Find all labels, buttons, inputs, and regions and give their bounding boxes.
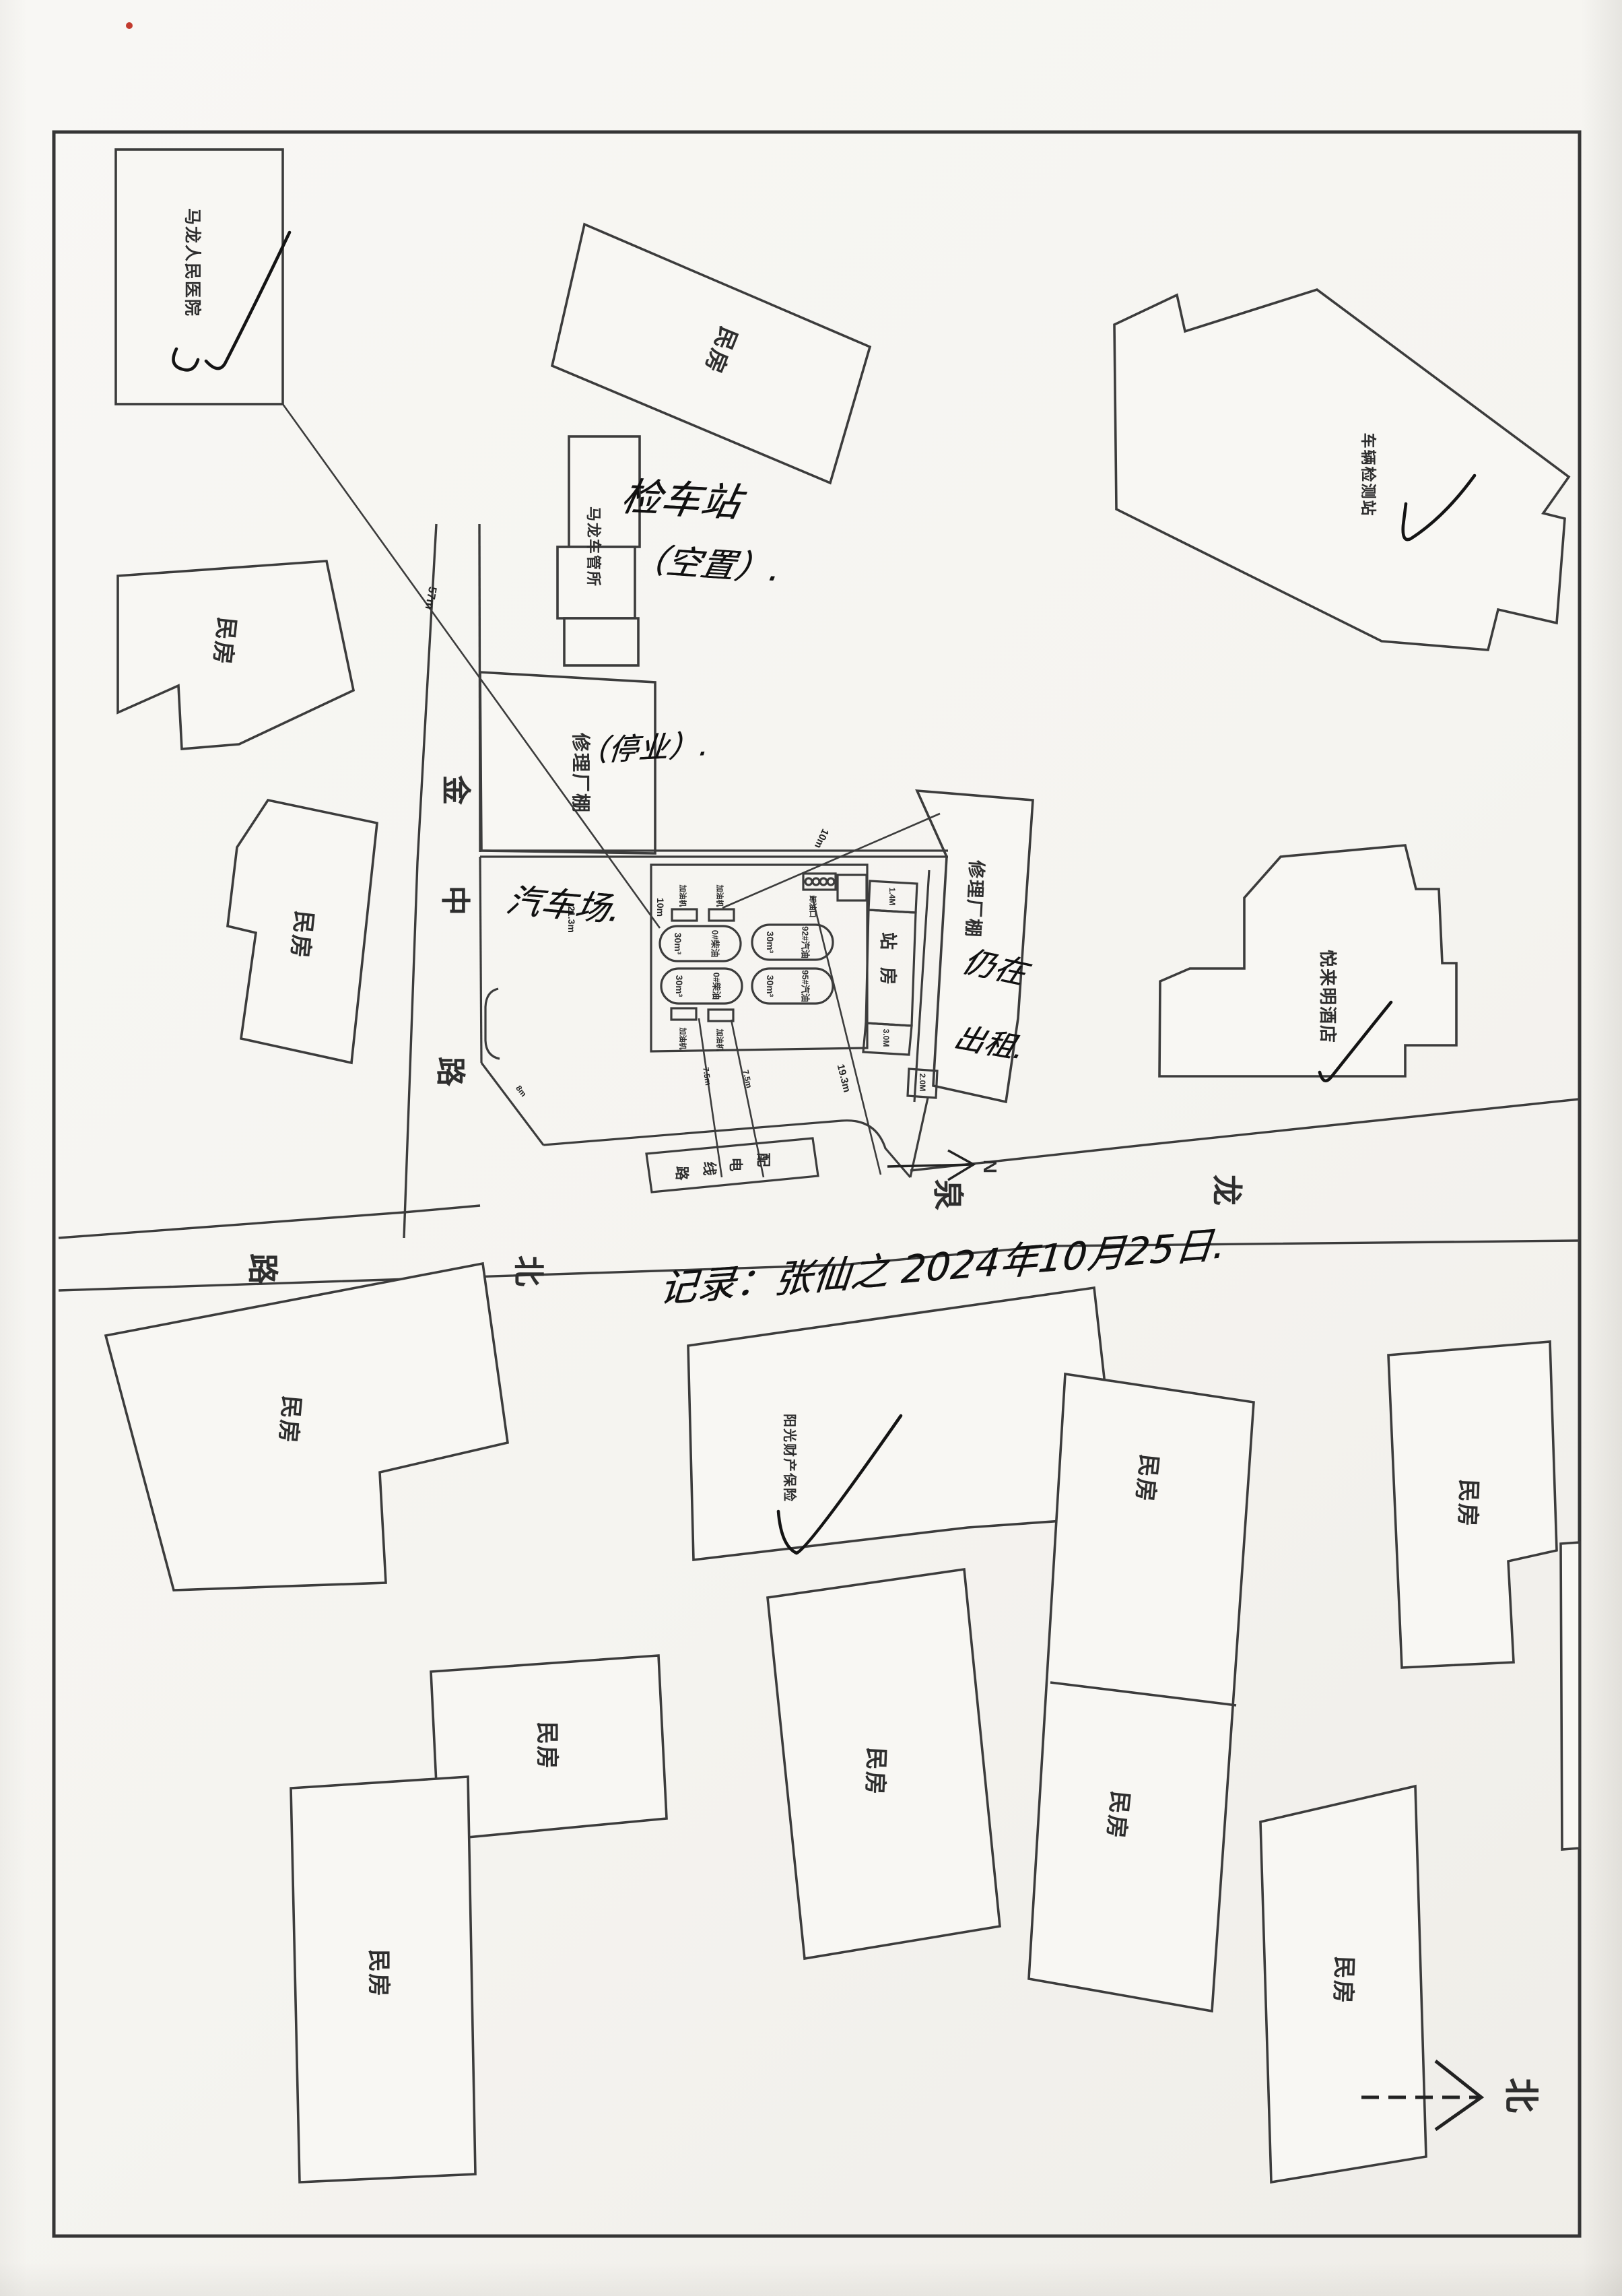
building-outline-hotel bbox=[1159, 845, 1456, 1076]
building-label-hotel: 悦来明酒店 bbox=[1319, 950, 1337, 1044]
building-label-house: 民房 bbox=[1133, 1453, 1160, 1503]
building-outline-vehicle-admin-3 bbox=[564, 618, 638, 665]
powerline-char-pei: 配 bbox=[756, 1153, 770, 1167]
tank-2-product-label: 0#柴油 bbox=[712, 973, 721, 999]
tank-4-outline bbox=[752, 969, 833, 1004]
dim-line-19-3m bbox=[812, 896, 881, 1175]
building-label-house: 民房 bbox=[367, 1949, 390, 1998]
road-main-char-lu: 路 bbox=[247, 1253, 278, 1286]
unloading-port-1 bbox=[805, 878, 812, 885]
powerline-char-dian: 电 bbox=[729, 1158, 743, 1172]
building-outline-strip-east bbox=[1561, 1542, 1580, 1849]
handwriting-canopy-note: 汽车场. bbox=[504, 884, 626, 927]
dim-line-10m bbox=[722, 814, 940, 908]
road-side-left-edge bbox=[404, 524, 436, 1238]
tank-4-volume-label: 30m³ bbox=[766, 975, 775, 997]
tank-2-volume-label: 30m³ bbox=[675, 975, 684, 997]
building-label-repair-shed-right: 修理厂棚 bbox=[963, 859, 985, 938]
plot-bottom-boundary bbox=[543, 1121, 910, 1177]
tank-3-volume-label: 30m³ bbox=[766, 931, 775, 954]
dim-label-10m-edge: 10m bbox=[656, 898, 665, 917]
plot-corner-diagonal bbox=[481, 1063, 543, 1145]
site-plan-drawing bbox=[0, 0, 1622, 2296]
dispenser-a1 bbox=[672, 909, 697, 921]
entrance-curb-arc bbox=[485, 989, 500, 1059]
buildings-linework bbox=[106, 150, 1580, 2182]
tank-1-outline bbox=[660, 926, 741, 961]
building-label-inspection-station: 车辆检测站 bbox=[1361, 433, 1376, 517]
road-main-upper-edge-right bbox=[910, 1099, 1579, 1171]
north-char-bottom-right: 北 bbox=[1503, 2078, 1538, 2114]
tank-2-outline bbox=[661, 969, 742, 1004]
dispenser-a2 bbox=[709, 909, 734, 921]
handwriting-closed-note: （停业）. bbox=[577, 731, 711, 767]
dispenser-b1 bbox=[671, 1008, 696, 1020]
road-main-char-bei: 北 bbox=[513, 1255, 544, 1288]
road-side-char-jin: 金 bbox=[440, 775, 470, 806]
handwriting-inspection-note-line1: 检车站 bbox=[618, 478, 745, 523]
corner-box-label: 2.0M bbox=[918, 1074, 926, 1092]
building-outline-house-left-1 bbox=[118, 561, 353, 749]
building-label-house: 民房 bbox=[1456, 1478, 1480, 1528]
tank-1-volume-label: 30m³ bbox=[673, 933, 683, 955]
building-label-insurance: 阳光财产保险 bbox=[782, 1414, 796, 1503]
powerline-char-lu: 路 bbox=[675, 1167, 689, 1181]
building-label-house: 民房 bbox=[288, 909, 315, 960]
building-label-vehicle-admin: 马龙车管所 bbox=[586, 506, 601, 587]
dispenser-label: 加油机 bbox=[679, 1028, 686, 1050]
plot-left-boundary bbox=[480, 857, 481, 1063]
building-label-house: 民房 bbox=[535, 1721, 558, 1770]
dispenser-label: 加油机 bbox=[716, 1029, 723, 1051]
dim-label-7-5m-a: 7.5m bbox=[702, 1067, 712, 1086]
scan-artifact-dot bbox=[126, 22, 133, 29]
tank-1-product-label: 0#柴油 bbox=[711, 930, 720, 957]
unloading-port-3 bbox=[820, 878, 827, 885]
handwriting-inspection-note-line2: （空置）. bbox=[630, 543, 785, 587]
tank-3-product-label: 92#汽油 bbox=[801, 926, 810, 958]
powerline-char-xian: 线 bbox=[702, 1162, 716, 1176]
unloading-port-2 bbox=[813, 878, 819, 885]
building-label-house: 民房 bbox=[276, 1395, 303, 1445]
building-outline-insurance bbox=[688, 1288, 1120, 1560]
building-label-hospital: 马龙人民医院 bbox=[184, 208, 201, 317]
dispenser-label: 加油机 bbox=[716, 885, 723, 907]
room-bottom-label: 3.0M bbox=[882, 1029, 890, 1047]
room-label-station-house: 站房 bbox=[879, 932, 897, 1002]
scanned-site-plan: 马龙人民医院 民房 马龙车管所 车辆检测站 民房 民房 修理厂棚 修理厂棚 悦来… bbox=[0, 0, 1622, 2296]
building-label-house: 民房 bbox=[1104, 1790, 1131, 1840]
road-main-char-long: 龙 bbox=[1211, 1175, 1242, 1207]
north-arrow-br-head bbox=[1435, 2061, 1481, 2130]
unloading-aux-box bbox=[838, 875, 867, 900]
building-label-house: 民房 bbox=[1331, 1955, 1355, 2004]
room-top-label: 1.4M bbox=[888, 888, 896, 906]
building-label-house: 民房 bbox=[210, 616, 238, 666]
tank-4-product-label: 95#汽油 bbox=[801, 970, 810, 1002]
dispenser-label: 加油机 bbox=[679, 885, 686, 907]
dispenser-b2 bbox=[708, 1010, 733, 1021]
building-label-house: 民房 bbox=[863, 1746, 887, 1796]
unloading-label: 卸油口 bbox=[809, 896, 816, 918]
road-side-char-lu: 路 bbox=[435, 1057, 465, 1088]
unloading-port-4 bbox=[827, 878, 834, 885]
road-side-char-zhong: 中 bbox=[440, 886, 469, 917]
north-letter-mid: N bbox=[980, 1160, 999, 1175]
road-main-upper-edge-left bbox=[59, 1206, 480, 1238]
road-main-char-quan: 泉 bbox=[933, 1179, 964, 1212]
building-outline-inspection-station bbox=[1114, 290, 1569, 650]
building-outline-house-sw bbox=[106, 1264, 508, 1590]
